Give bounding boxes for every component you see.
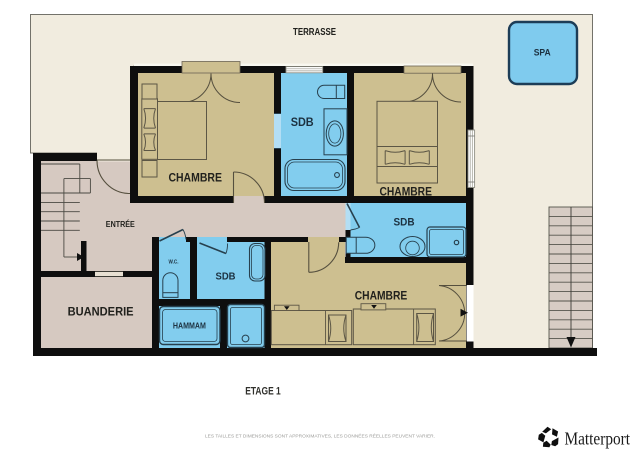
svg-text:CHAMBRE: CHAMBRE xyxy=(355,289,408,303)
svg-text:W.C.: W.C. xyxy=(169,260,179,266)
svg-text:HAMMAM: HAMMAM xyxy=(173,321,206,330)
svg-text:ENTRÉE: ENTRÉE xyxy=(106,220,136,229)
svg-text:ETAGE 1: ETAGE 1 xyxy=(245,386,281,398)
svg-text:CHAMBRE: CHAMBRE xyxy=(379,184,432,198)
svg-text:BUANDERIE: BUANDERIE xyxy=(68,305,134,319)
svg-text:Matterport: Matterport xyxy=(565,429,631,449)
svg-text:SDB: SDB xyxy=(394,217,415,229)
svg-text:TERRASSE: TERRASSE xyxy=(293,27,336,38)
svg-text:SDB: SDB xyxy=(216,271,236,282)
svg-text:SDB: SDB xyxy=(291,115,314,129)
svg-text:LES TAILLES ET DIMENSIONS SONT: LES TAILLES ET DIMENSIONS SONT APPROXIMA… xyxy=(205,432,435,438)
svg-text:SPA: SPA xyxy=(534,47,551,57)
svg-text:CHAMBRE: CHAMBRE xyxy=(168,170,222,184)
